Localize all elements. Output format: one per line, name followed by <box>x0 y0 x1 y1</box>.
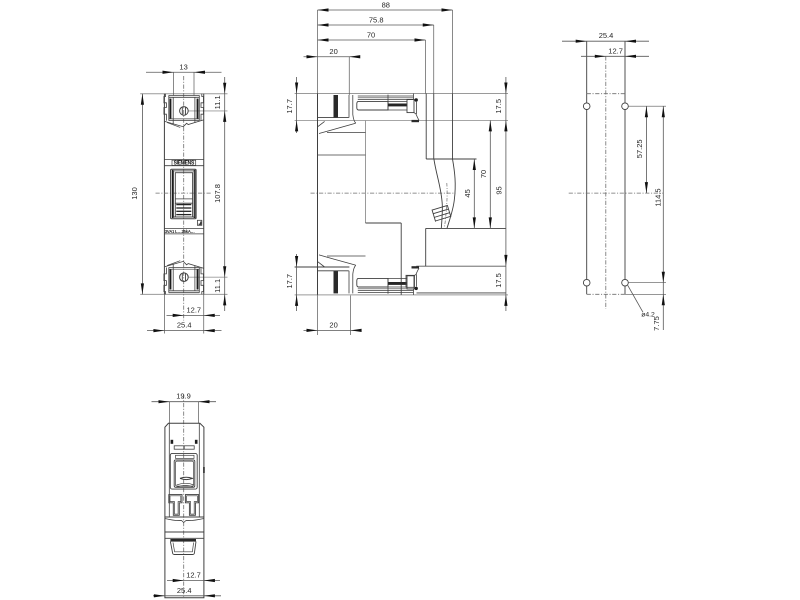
svg-text:20: 20 <box>329 321 337 330</box>
svg-text:12.7: 12.7 <box>608 46 623 55</box>
svg-text:17.7: 17.7 <box>285 99 294 114</box>
svg-text:107.8: 107.8 <box>213 184 222 203</box>
svg-text:130: 130 <box>130 187 139 200</box>
svg-text:17.7: 17.7 <box>285 274 294 289</box>
svg-text:12.7: 12.7 <box>186 570 201 579</box>
svg-text:70: 70 <box>367 30 375 39</box>
svg-text:11.1: 11.1 <box>213 95 222 109</box>
svg-text:114.5: 114.5 <box>653 188 662 206</box>
svg-text:3VA1 L…25kA…: 3VA1 L…25kA… <box>165 229 195 234</box>
svg-text:88: 88 <box>382 0 390 9</box>
svg-text:SIEMENS: SIEMENS <box>174 161 195 167</box>
svg-text:25.4: 25.4 <box>599 31 614 40</box>
svg-text:25.4: 25.4 <box>177 321 192 330</box>
svg-text:13: 13 <box>179 62 187 71</box>
svg-text:70: 70 <box>479 170 488 178</box>
svg-text:19.9: 19.9 <box>176 392 191 401</box>
svg-text:75.8: 75.8 <box>369 15 384 24</box>
svg-text:95: 95 <box>494 186 503 194</box>
svg-text:20: 20 <box>329 47 337 56</box>
svg-text:17.5: 17.5 <box>494 99 503 114</box>
svg-text:ø4.2: ø4.2 <box>641 312 655 319</box>
svg-text:45: 45 <box>463 189 472 197</box>
svg-text:11.1: 11.1 <box>213 279 222 293</box>
svg-text:57.25: 57.25 <box>635 139 644 158</box>
svg-text:17.5: 17.5 <box>494 273 503 288</box>
svg-text:12.7: 12.7 <box>186 305 201 314</box>
svg-text:25.4: 25.4 <box>177 586 192 595</box>
